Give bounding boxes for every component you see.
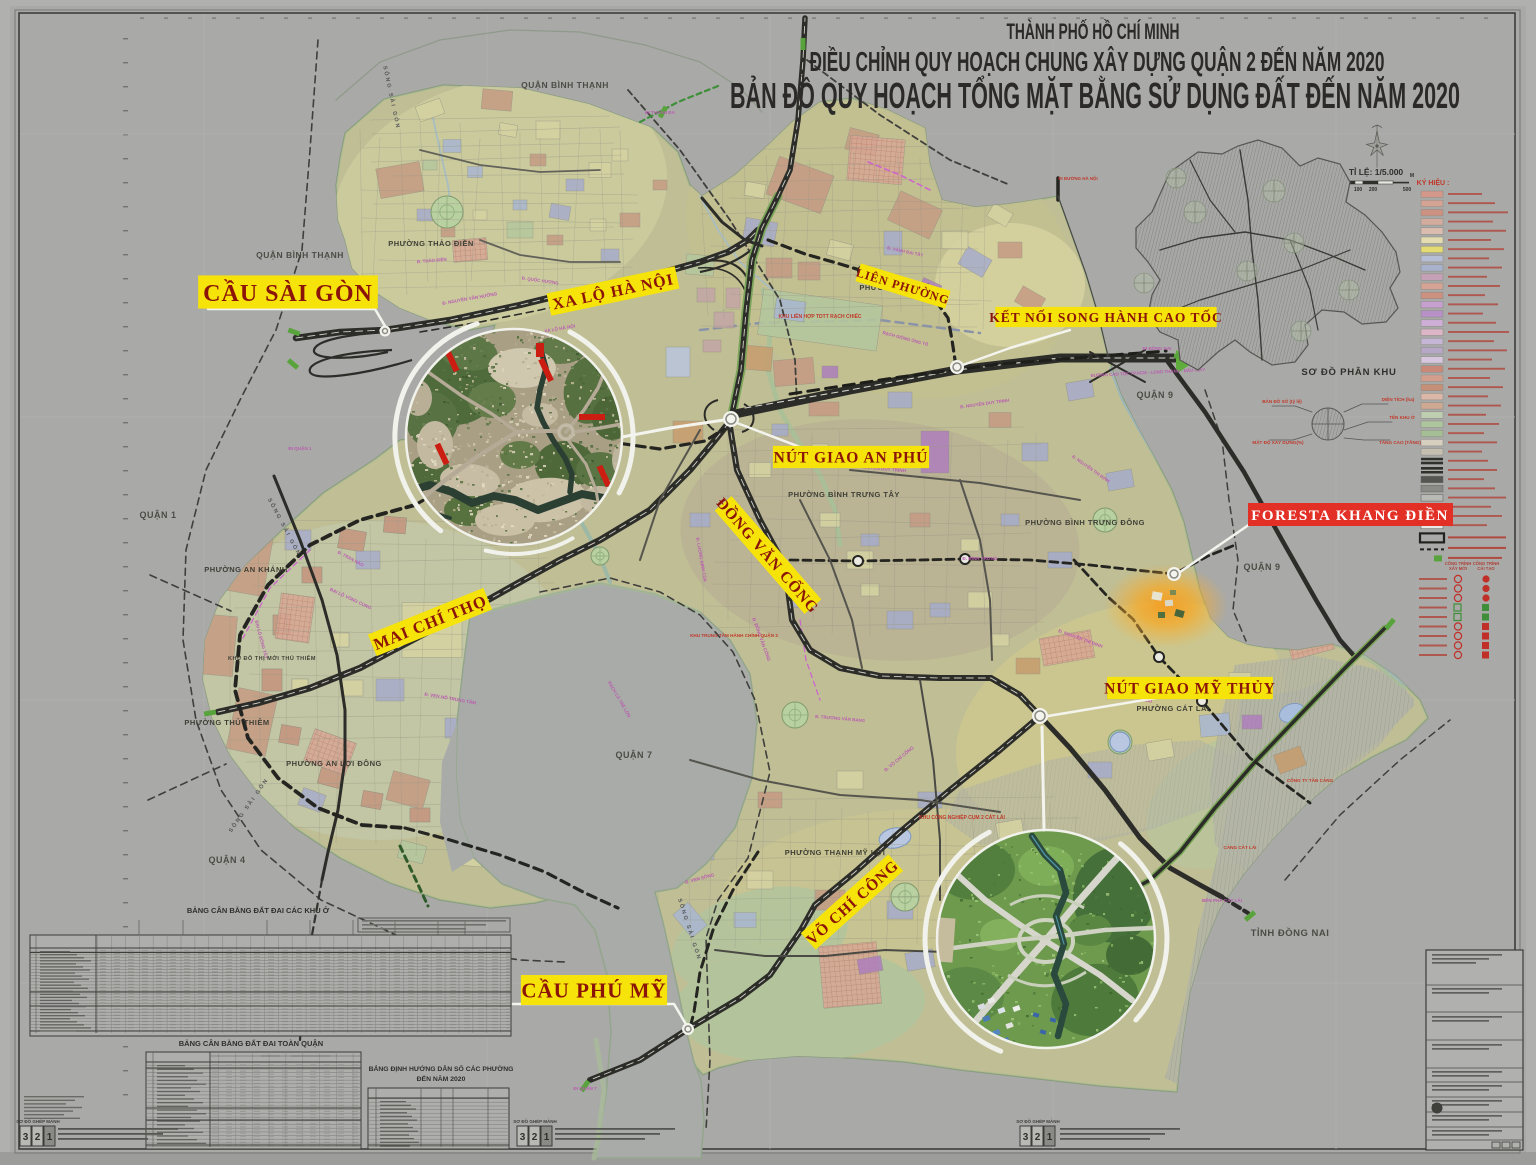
svg-text:QUẬN 9: QUẬN 9 [1136,389,1173,400]
svg-text:ĐIỀU CHỈNH QUY HOẠCH CHUNG XÂY: ĐIỀU CHỈNH QUY HOẠCH CHUNG XÂY DỰNG QUẬN… [810,45,1385,77]
svg-text:QUẬN 4: QUẬN 4 [208,854,245,865]
svg-text:SƠ ĐỒ GHÉP MẢNH: SƠ ĐỒ GHÉP MẢNH [513,1117,557,1124]
svg-text:BẢNG CÂN BẰNG ĐẤT ĐAI TOÀN QUẬ: BẢNG CÂN BẰNG ĐẤT ĐAI TOÀN QUẬN [179,1038,323,1048]
svg-text:MẬT ĐỘ XÂY DỰNG(%): MẬT ĐỘ XÂY DỰNG(%) [1252,438,1304,445]
svg-text:PHƯỜNG CÁT LÁI: PHƯỜNG CÁT LÁI [1137,704,1210,713]
svg-text:3: 3 [520,1132,526,1143]
svg-text:KÝ HIỆU :: KÝ HIỆU : [1417,178,1450,187]
svg-text:ĐI QUẬN 1: ĐI QUẬN 1 [288,445,312,451]
svg-text:KHU LIÊN HỢP TDTT RẠCH CHIẾC: KHU LIÊN HỢP TDTT RẠCH CHIẾC [778,312,861,320]
svg-text:NÚT GIAO MỸ THỦY: NÚT GIAO MỸ THỦY [1104,680,1276,698]
svg-text:KẾT NỐI SONG HÀNH CAO TỐC: KẾT NỐI SONG HÀNH CAO TỐC [989,310,1222,325]
svg-text:500: 500 [1403,187,1412,193]
svg-text:TẦNG CAO (TẦNG): TẦNG CAO (TẦNG) [1379,439,1421,445]
svg-text:KHU CÔNG NGHIỆP CỤM 2 CÁT LÁI: KHU CÔNG NGHIỆP CỤM 2 CÁT LÁI [919,813,1005,821]
svg-text:KHU ĐÔ THỊ MỚI THỦ THIÊM: KHU ĐÔ THỊ MỚI THỦ THIÊM [228,654,316,662]
svg-text:1: 1 [544,1132,550,1143]
svg-text:TỈ LỆ: 1/5.000: TỈ LỆ: 1/5.000 [1349,166,1404,177]
svg-text:XÂY MỚI: XÂY MỚI [1449,566,1467,571]
svg-text:QUẬN BÌNH THẠNH: QUẬN BÌNH THẠNH [256,249,344,260]
svg-text:FORESTA KHANG ĐIỀN: FORESTA KHANG ĐIỀN [1251,507,1449,524]
svg-text:CÔNG TY TÂN CẢNG: CÔNG TY TÂN CẢNG [1287,776,1334,783]
svg-text:PHƯỜNG AN KHÁNH: PHƯỜNG AN KHÁNH [204,565,288,574]
svg-text:SƠ ĐỒ PHÂN KHU: SƠ ĐỒ PHÂN KHU [1301,366,1396,378]
svg-text:1: 1 [47,1132,53,1143]
svg-text:2: 2 [1035,1132,1041,1143]
svg-text:1: 1 [1047,1132,1053,1143]
svg-text:CẦU PHÚ MỸ: CẦU PHÚ MỸ [521,979,666,1003]
svg-text:M: M [1410,173,1414,179]
svg-text:SƠ ĐỒ GHÉP MẢNH: SƠ ĐỒ GHÉP MẢNH [1016,1117,1060,1124]
svg-text:ĐI QUẬN 7: ĐI QUẬN 7 [573,1085,597,1091]
svg-text:2: 2 [35,1132,41,1143]
svg-text:QUẬN BÌNH THẠNH: QUẬN BÌNH THẠNH [521,79,609,90]
svg-text:BẢNG CÂN BẰNG ĐẤT ĐAI CÁC KHU: BẢNG CÂN BẰNG ĐẤT ĐAI CÁC KHU Ở [187,905,330,915]
svg-text:PHƯỜNG THẠNH MỸ LỢI: PHƯỜNG THẠNH MỸ LỢI [785,848,886,857]
svg-text:ĐI ĐƯỜNG HÀ NỘI: ĐI ĐƯỜNG HÀ NỘI [1058,176,1097,181]
svg-text:QUẬN 9: QUẬN 9 [1243,561,1280,572]
svg-text:PHƯỜNG BÌNH TRƯNG TÂY: PHƯỜNG BÌNH TRƯNG TÂY [788,490,900,499]
svg-text:KHU TRUNG TÂM HÀNH CHÍNH QUẬN: KHU TRUNG TÂM HÀNH CHÍNH QUẬN 2 [690,631,778,638]
svg-text:PHƯỜNG AN LỢI ĐÔNG: PHƯỜNG AN LỢI ĐÔNG [286,759,382,768]
svg-text:3: 3 [1023,1132,1029,1143]
svg-text:PHƯỜNG BÌNH TRƯNG ĐÔNG: PHƯỜNG BÌNH TRƯNG ĐÔNG [1025,518,1145,527]
svg-text:TÊN KHU Ở: TÊN KHU Ở [1389,413,1415,420]
svg-text:Đ. BÌNH TRƯNG: Đ. BÌNH TRƯNG [962,554,998,561]
svg-text:3: 3 [23,1132,29,1143]
svg-text:200: 200 [1369,187,1378,193]
svg-text:QUẬN 1: QUẬN 1 [139,509,176,520]
svg-text:2: 2 [532,1132,538,1143]
svg-text:100: 100 [1354,187,1363,193]
svg-text:BẢN ĐỒ SỐ (tỷ lệ): BẢN ĐỒ SỐ (tỷ lệ) [1262,398,1302,404]
svg-text:TỈNH ĐỒNG NAI: TỈNH ĐỒNG NAI [1251,927,1330,939]
svg-text:QUẬN 7: QUẬN 7 [615,749,652,760]
svg-text:ĐI THANH ĐA: ĐI THANH ĐA [645,110,676,115]
svg-text:BẢN ĐỒ QUY HOẠCH TỔNG MẶT BẰNG: BẢN ĐỒ QUY HOẠCH TỔNG MẶT BẰNG SỬ DỤNG Đ… [730,73,1460,116]
svg-text:PHƯỜNG THẢO ĐIỀN: PHƯỜNG THẢO ĐIỀN [388,238,474,248]
svg-text:CẢNG CÁT LÁI: CẢNG CÁT LÁI [1224,844,1257,850]
svg-text:BẾN PHÀ CÁT LÁI: BẾN PHÀ CÁT LÁI [1202,897,1242,903]
svg-text:CẢI TẠO: CẢI TẠO [1477,566,1495,571]
svg-text:NÚT GIAO AN PHÚ: NÚT GIAO AN PHÚ [774,450,929,467]
svg-text:ĐI ĐỒNG NAI: ĐI ĐỒNG NAI [1143,345,1172,351]
svg-text:CẦU SÀI GÒN: CẦU SÀI GÒN [203,280,373,307]
svg-text:THÀNH PHỐ HỒ CHÍ MINH: THÀNH PHỐ HỒ CHÍ MINH [1007,18,1180,44]
svg-text:DIỆN TÍCH (ha): DIỆN TÍCH (ha) [1382,395,1415,402]
svg-text:PHƯỜNG THỦ THIÊM: PHƯỜNG THỦ THIÊM [184,718,269,727]
